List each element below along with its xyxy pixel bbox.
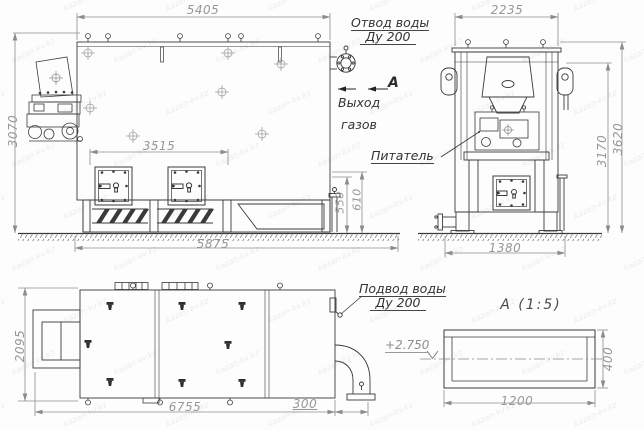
boiler-body-side	[455, 52, 558, 212]
detail-a-dimensions	[444, 330, 608, 407]
hatch-door-left	[95, 167, 132, 205]
boiler-body-plan	[80, 290, 335, 398]
side-pipe-right	[557, 175, 567, 231]
side-view-drawing	[418, 40, 602, 241]
crosshair-marks	[81, 46, 288, 143]
eye-bolts-plan	[86, 283, 283, 405]
drawing-canvas: kazan-kv.kzkazan-kv.kzkazan-kv.kzkazan-k…	[0, 0, 644, 430]
feed-hopper-side	[482, 57, 534, 113]
front-view-drawing	[18, 34, 400, 241]
water-pipe-elbow-plan	[335, 345, 375, 400]
section-arrows	[338, 86, 388, 91]
plan-view-drawing	[33, 283, 375, 406]
water-inlet-stub-plan	[330, 298, 342, 317]
hatch-door-right	[168, 167, 205, 205]
boiler-body-front	[77, 42, 330, 200]
side-view-dimensions	[445, 13, 626, 257]
eye-bolts-top	[86, 34, 321, 42]
elevation-mark-symbol	[427, 351, 438, 359]
stud-bolts-plan	[85, 302, 246, 387]
top-rails-plan	[115, 283, 198, 290]
feeder-leader-line	[441, 132, 479, 157]
fuel-feeder-front	[27, 57, 83, 142]
feeder-mechanism-side	[475, 106, 539, 150]
plan-view-dimensions	[18, 288, 368, 416]
feeder-box-plan	[33, 310, 80, 368]
detail-a-drawing	[420, 330, 603, 388]
hatch-door-side	[493, 176, 530, 210]
water-inlet-pipe-front	[329, 188, 340, 233]
line-art	[0, 0, 644, 430]
drain-elbow-side	[435, 214, 456, 230]
water-inlet-leader	[341, 296, 362, 314]
lifting-lug-right	[557, 68, 573, 95]
water-outlet-flange	[330, 46, 355, 72]
eye-bolts-top-side	[466, 40, 546, 48]
